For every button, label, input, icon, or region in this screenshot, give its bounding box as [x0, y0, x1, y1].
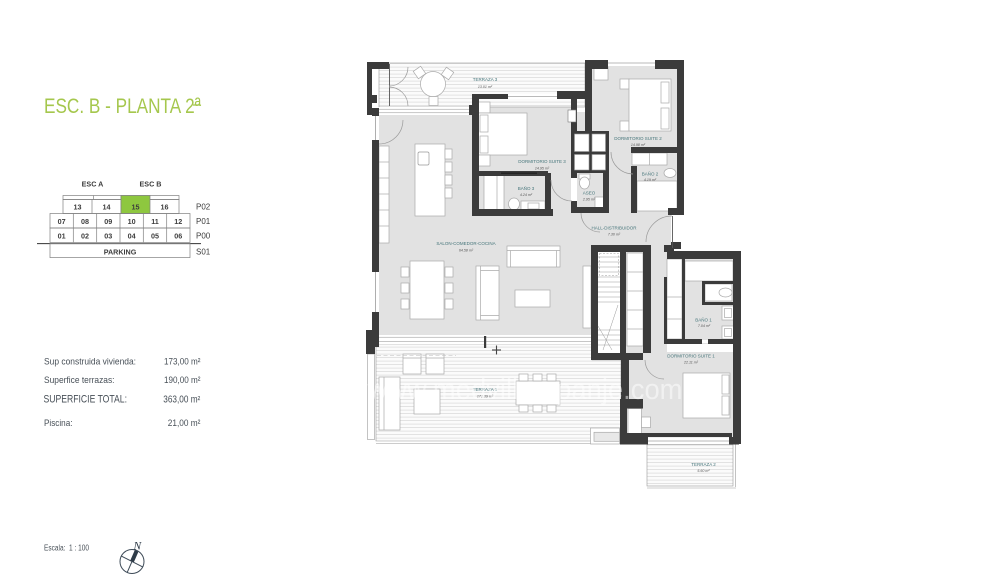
- svg-text:13: 13: [74, 203, 82, 212]
- svg-text:SALON-COMEDOR-COCINA: SALON-COMEDOR-COCINA: [436, 241, 495, 246]
- svg-text:BAÑO 1: BAÑO 1: [695, 317, 712, 323]
- svg-text:ESC B: ESC B: [140, 180, 162, 189]
- svg-text:ESC. B - PLANTA 2ª: ESC. B - PLANTA 2ª: [44, 94, 202, 118]
- svg-text:Escala: 1 : 100: Escala: 1 : 100: [44, 544, 89, 553]
- svg-text:09: 09: [104, 217, 112, 226]
- svg-text:HALL-DISTRIBUIDOR: HALL-DISTRIBUIDOR: [591, 226, 637, 231]
- svg-text:TERRAZA 2: TERRAZA 2: [691, 462, 716, 467]
- svg-text:PARKING: PARKING: [104, 248, 137, 257]
- svg-text:DORMITORIO SUITE 3: DORMITORIO SUITE 3: [518, 159, 566, 164]
- svg-text:Sup construida vivienda:: Sup construida vivienda:: [44, 357, 136, 367]
- svg-text:5.60 m²: 5.60 m²: [697, 469, 710, 473]
- svg-text:02: 02: [81, 232, 89, 241]
- svg-text:06: 06: [174, 232, 182, 241]
- svg-text:11: 11: [151, 217, 159, 226]
- svg-text:03: 03: [104, 232, 112, 241]
- svg-text:P00: P00: [196, 232, 211, 241]
- svg-text:4.24 m²: 4.24 m²: [520, 193, 533, 197]
- svg-text:BAÑO 2: BAÑO 2: [642, 171, 659, 177]
- svg-text:64.58 m²: 64.58 m²: [459, 249, 474, 253]
- svg-text:14: 14: [103, 203, 111, 212]
- svg-text:16: 16: [161, 203, 169, 212]
- svg-text:13.01 m²: 13.01 m²: [478, 85, 493, 89]
- svg-text:22.11 m²: 22.11 m²: [683, 361, 699, 365]
- svg-text:SUPERFICIE TOTAL:: SUPERFICIE TOTAL:: [44, 394, 128, 406]
- svg-text:12: 12: [174, 217, 182, 226]
- svg-text:4.19 m²: 4.19 m²: [644, 178, 657, 182]
- svg-text:N: N: [133, 541, 143, 553]
- svg-text:173,00 m²: 173,00 m²: [164, 357, 201, 367]
- svg-text:Superfice terrazas:: Superfice terrazas:: [44, 375, 115, 385]
- svg-text:ESC A: ESC A: [82, 180, 104, 189]
- svg-text:www.medvilla-spanje.com: www.medvilla-spanje.com: [367, 374, 683, 406]
- svg-text:DORMITORIO SUITE 2: DORMITORIO SUITE 2: [614, 136, 662, 141]
- svg-text:363,00 m²: 363,00 m²: [163, 395, 201, 406]
- svg-text:Piscina:: Piscina:: [44, 418, 73, 428]
- svg-text:07: 07: [58, 217, 66, 226]
- svg-text:7.04 m²: 7.04 m²: [698, 324, 711, 328]
- svg-text:S01: S01: [196, 248, 211, 257]
- svg-text:DORMITORIO SUITE 1: DORMITORIO SUITE 1: [667, 354, 715, 359]
- svg-text:15: 15: [132, 203, 140, 212]
- svg-text:TERRAZA 3: TERRAZA 3: [473, 77, 498, 82]
- svg-text:14.95 m²: 14.95 m²: [535, 167, 550, 171]
- svg-text:21,00 m²: 21,00 m²: [168, 418, 201, 428]
- svg-text:2.95 m²: 2.95 m²: [582, 198, 596, 202]
- svg-text:01: 01: [58, 232, 66, 241]
- svg-text:P02: P02: [196, 203, 211, 212]
- svg-text:10: 10: [128, 217, 136, 226]
- svg-text:7.30 m²: 7.30 m²: [608, 233, 621, 237]
- svg-text:BAÑO 3: BAÑO 3: [518, 185, 535, 191]
- svg-text:ASEO: ASEO: [583, 191, 596, 196]
- svg-text:08: 08: [81, 217, 89, 226]
- svg-text:05: 05: [151, 232, 159, 241]
- svg-text:190,00 m²: 190,00 m²: [164, 375, 201, 385]
- svg-text:04: 04: [128, 232, 136, 241]
- svg-text:P01: P01: [196, 217, 211, 226]
- svg-text:14.98 m²: 14.98 m²: [631, 143, 646, 147]
